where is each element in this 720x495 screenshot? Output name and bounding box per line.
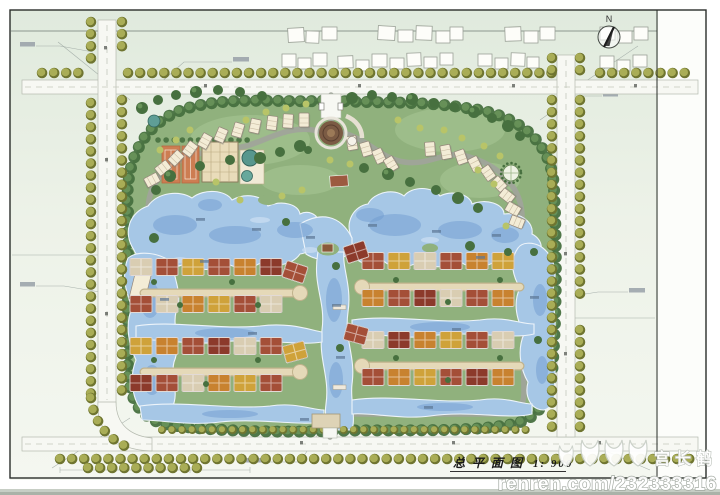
villa [492,369,514,386]
villa [414,369,436,386]
title-block: 总平面图 1: 900 [450,456,573,472]
gate-pillar [338,103,343,110]
villa [388,290,410,307]
villa [156,338,178,355]
villa [492,290,514,307]
gate-pillar [319,103,324,110]
villa [234,296,256,313]
north-label: N [606,14,613,24]
villa [208,375,230,392]
villa [440,253,462,270]
villa [440,332,462,349]
villa [260,296,282,313]
villa [466,332,488,349]
villa [234,259,256,276]
villa [492,253,514,270]
villa [260,338,282,355]
villa [260,259,282,276]
canal-bridge [333,385,346,390]
lake-island [422,244,438,253]
villa [156,259,178,276]
villa [466,369,488,386]
villa [388,369,410,386]
villa [130,375,152,392]
entrance-pavilion [348,137,357,146]
villa [414,332,436,349]
lake-pavilion [322,244,333,252]
villa [208,338,230,355]
villa [182,296,204,313]
villa [466,253,488,270]
master-plan-svg: N 总平面图 1: 900 宫长鹤 renren.com/232333316 [0,0,720,495]
annotation-label [233,57,249,62]
round-garden-west [148,115,160,127]
villa [130,259,152,276]
villa [466,290,488,307]
villa [440,369,462,386]
villa [208,296,230,313]
villa [414,290,436,307]
villa [440,290,462,307]
lake-island [258,195,278,205]
villa [388,332,410,349]
watermark-site: renren.com/232333316 [498,473,717,495]
villa [388,253,410,270]
villa [362,369,384,386]
watermark-name: 宫长鹤 [654,449,717,468]
villa [362,290,384,307]
cul-de-sac [293,365,308,380]
annotation-label [629,288,645,293]
villa [414,253,436,270]
annotation-label [20,282,35,287]
villa [130,338,152,355]
villa [260,375,282,392]
cul-de-sac [293,286,308,301]
children-pool [242,171,253,182]
villa [208,259,230,276]
annotation-label [20,42,35,47]
villa [156,375,178,392]
drawing-sheet: N 总平面图 1: 900 宫长鹤 renren.com/232333316 [0,0,720,495]
villa [130,296,152,313]
plan-title: 总平面图 [453,456,529,470]
villa [182,375,204,392]
villa [182,338,204,355]
villa [492,332,514,349]
garden-pavilion-building [330,175,349,187]
villa [234,375,256,392]
villa [234,338,256,355]
